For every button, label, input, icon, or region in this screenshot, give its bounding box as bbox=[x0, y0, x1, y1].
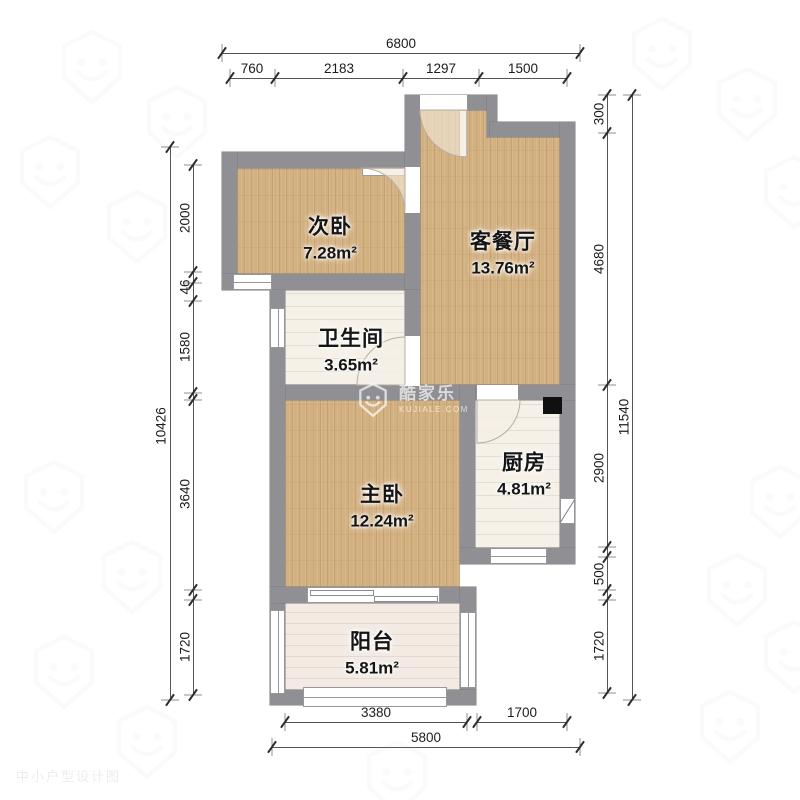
kitchen-flue bbox=[543, 397, 562, 414]
faint-logo-watermark-icon bbox=[738, 460, 800, 544]
dim-right-seg-500: 500 bbox=[592, 563, 607, 586]
window-balcony-bottom bbox=[303, 687, 447, 707]
faint-logo-watermark-icon bbox=[752, 150, 800, 234]
dim-top-seg-2183: 2183 bbox=[324, 61, 354, 78]
dim-left-seg-1720: 1720 bbox=[178, 632, 193, 662]
room-area: 12.24m² bbox=[350, 512, 413, 532]
dim-right-seg-1720: 1720 bbox=[592, 631, 607, 661]
dim-left-overall: 10426 bbox=[154, 407, 169, 445]
dim-top-seg-1297: 1297 bbox=[426, 61, 456, 78]
faint-logo-watermark-icon bbox=[22, 630, 106, 714]
room-label-living-dining: 客餐厅 13.76m² bbox=[470, 226, 536, 279]
wall-second-bedroom-left bbox=[222, 152, 237, 290]
dim-right-overall: 11540 bbox=[617, 399, 632, 436]
faint-logo-watermark-icon bbox=[752, 615, 800, 699]
window-balcony-right bbox=[460, 612, 476, 688]
door-leaf-entry bbox=[459, 110, 467, 157]
dim-left-seg-3640: 3640 bbox=[178, 479, 193, 509]
room-area: 5.81m² bbox=[345, 659, 399, 679]
faint-logo-watermark-icon bbox=[135, 80, 219, 164]
door-opening-second-bedroom bbox=[405, 167, 420, 213]
faint-logo-watermark-icon bbox=[688, 685, 772, 769]
dim-top-seg-1500: 1500 bbox=[508, 61, 538, 78]
room-name: 客餐厅 bbox=[470, 226, 536, 256]
room-area: 4.81m² bbox=[497, 480, 551, 500]
dim-left-seg-46: 46 bbox=[178, 279, 193, 294]
room-area: 3.65m² bbox=[318, 356, 384, 376]
dim-left-seg-2000: 2000 bbox=[178, 203, 193, 233]
sliding-door-panel bbox=[310, 590, 374, 596]
dim-left-seg-1580: 1580 bbox=[178, 332, 193, 362]
window-bathroom bbox=[270, 308, 285, 348]
dim-line bbox=[272, 747, 580, 748]
faint-logo-watermark-icon bbox=[620, 12, 704, 96]
room-label-master-bedroom: 主卧 12.24m² bbox=[350, 479, 413, 532]
dim-right-seg-4680: 4680 bbox=[592, 244, 607, 274]
room-name: 阳台 bbox=[345, 626, 399, 656]
window-kitchen bbox=[490, 548, 547, 564]
dim-line bbox=[170, 147, 171, 700]
dim-right-seg-300: 300 bbox=[592, 103, 607, 126]
sliding-door-panel bbox=[374, 596, 438, 602]
faint-logo-watermark-icon bbox=[90, 535, 174, 619]
dim-line bbox=[632, 95, 633, 700]
door-opening-entry bbox=[420, 95, 467, 110]
dim-line bbox=[193, 165, 194, 695]
room-area: 13.76m² bbox=[470, 259, 536, 279]
corner-watermark-text: 中小户型设计图 bbox=[16, 766, 121, 785]
room-label-kitchen: 厨房 4.81m² bbox=[497, 447, 551, 500]
floor-living-entry bbox=[420, 110, 487, 137]
faint-logo-watermark-icon bbox=[12, 455, 96, 539]
room-name: 主卧 bbox=[350, 479, 413, 509]
dim-top-seg-760: 760 bbox=[241, 61, 264, 78]
door-leaf-second-bedroom bbox=[362, 168, 405, 176]
dim-line bbox=[477, 722, 567, 723]
window-kitchen-right-notch bbox=[560, 498, 575, 524]
dim-line bbox=[607, 95, 608, 693]
dim-right-seg-2900: 2900 bbox=[592, 453, 607, 483]
room-name: 卫生间 bbox=[318, 323, 384, 353]
room-name: 次卧 bbox=[303, 211, 357, 241]
dim-top-overall: 6800 bbox=[386, 36, 416, 53]
sliding-door-balcony bbox=[307, 587, 440, 603]
wall-master-kitchen-divider bbox=[460, 385, 475, 555]
faint-logo-watermark-icon bbox=[705, 62, 789, 146]
dim-line bbox=[222, 53, 580, 54]
faint-logo-watermark-icon bbox=[695, 548, 779, 632]
dim-bottom-seg-1700: 1700 bbox=[507, 705, 537, 722]
faint-logo-watermark-icon bbox=[95, 185, 179, 269]
room-label-balcony: 阳台 5.81m² bbox=[345, 626, 399, 679]
door-opening-kitchen bbox=[477, 385, 518, 400]
dim-bottom-seg-3380: 3380 bbox=[361, 705, 391, 722]
window-second-bedroom bbox=[233, 274, 272, 290]
faint-logo-watermark-icon bbox=[50, 25, 134, 109]
door-opening-bathroom bbox=[405, 336, 420, 386]
faint-logo-watermark-icon bbox=[8, 130, 92, 214]
wall-second-bedroom-top bbox=[222, 152, 420, 168]
dim-line bbox=[285, 722, 467, 723]
wall-middle-horizontal bbox=[270, 385, 575, 400]
room-name: 厨房 bbox=[497, 447, 551, 477]
dim-line bbox=[230, 78, 567, 79]
window-balcony-left bbox=[270, 610, 285, 694]
room-label-bathroom: 卫生间 3.65m² bbox=[318, 323, 384, 376]
room-label-second-bedroom: 次卧 7.28m² bbox=[303, 211, 357, 264]
dim-bottom-overall: 5800 bbox=[411, 730, 441, 747]
room-area: 7.28m² bbox=[303, 244, 357, 264]
floor-plan-canvas: 次卧 7.28m² 客餐厅 13.76m² 卫生间 3.65m² 主卧 12.2… bbox=[0, 0, 800, 800]
